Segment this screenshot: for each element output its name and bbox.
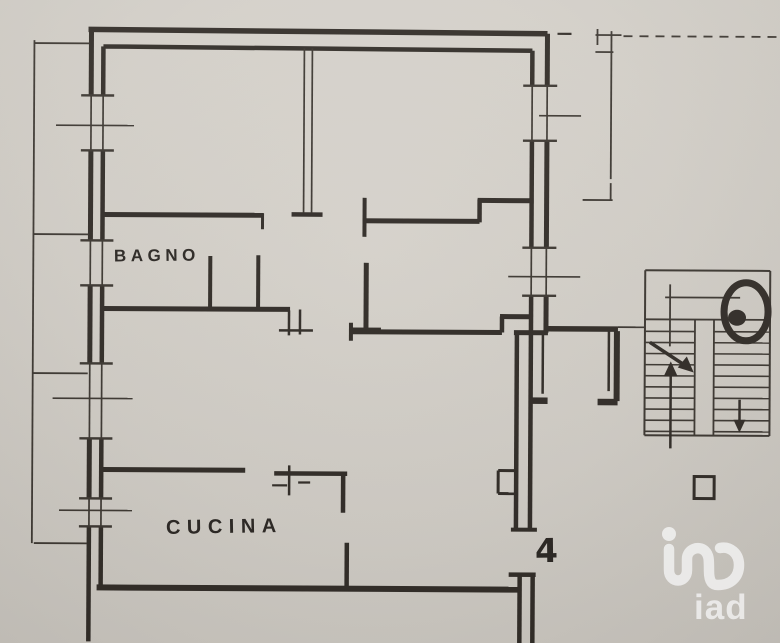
iad-logo-mark: [669, 548, 739, 585]
stair-direction-arrowhead: [664, 361, 678, 376]
room-label-cucina: CUCINA: [166, 515, 283, 540]
unit-number-label: 4: [535, 531, 558, 570]
iad-logo-dot: [662, 527, 676, 541]
iad-watermark-text: iad: [694, 588, 748, 628]
floor-plan-drawing: [0, 0, 780, 643]
stairwell-scribble-fill: [728, 310, 746, 326]
staircase: [644, 270, 770, 449]
floor-plan-photo: BAGNO CUCINA 4 iad: [0, 0, 780, 643]
landing-layer: [694, 477, 714, 499]
stair-direction-arrowhead: [733, 420, 745, 433]
landing-pillar-symbol: [694, 477, 714, 499]
iad-watermark-logo: [662, 527, 739, 585]
room-label-bagno: BAGNO: [114, 246, 200, 267]
windows-layer: [52, 47, 582, 529]
